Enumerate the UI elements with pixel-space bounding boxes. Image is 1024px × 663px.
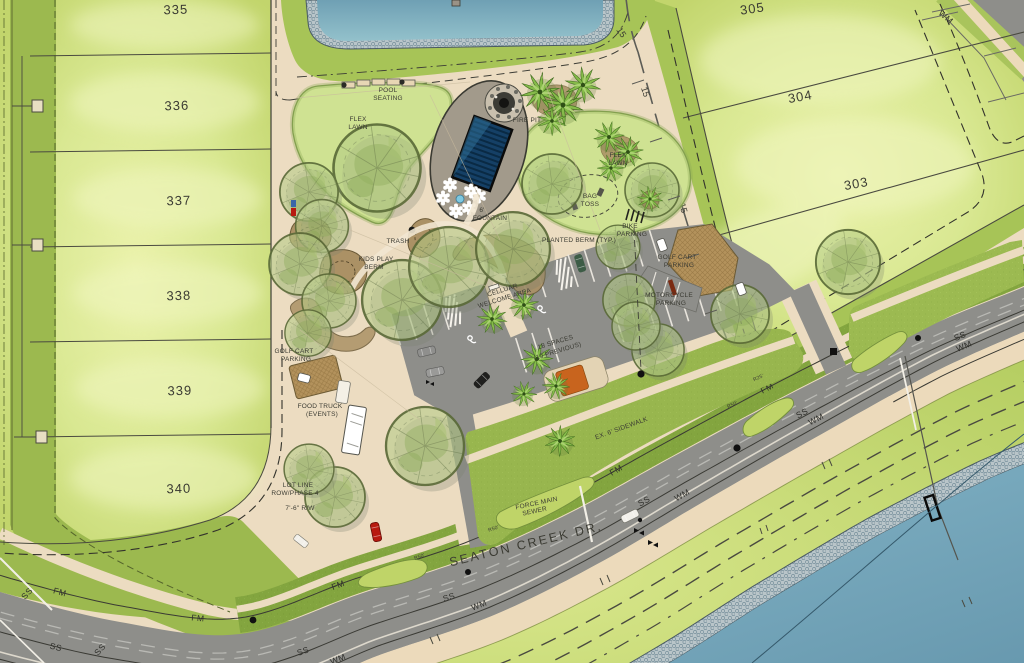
svg-text:7'-6" R/W: 7'-6" R/W — [285, 505, 315, 512]
svg-text:KIDS PLAY: KIDS PLAY — [359, 256, 394, 263]
svg-text:FIRE PIT: FIRE PIT — [513, 117, 541, 124]
svg-text:GOLF CART: GOLF CART — [275, 348, 314, 355]
svg-text:FM: FM — [191, 612, 205, 623]
svg-text:BERM: BERM — [364, 264, 384, 271]
svg-text:6': 6' — [479, 207, 484, 214]
svg-text:336: 336 — [164, 98, 189, 114]
svg-text:PARKING: PARKING — [281, 356, 311, 363]
svg-text:ROW/PHASE 4: ROW/PHASE 4 — [271, 490, 319, 497]
svg-text:LAWN: LAWN — [348, 124, 367, 131]
svg-text:340: 340 — [166, 481, 191, 497]
svg-text:FLEX: FLEX — [349, 116, 367, 123]
svg-text:337: 337 — [166, 193, 191, 209]
svg-text:PARKING: PARKING — [656, 300, 686, 307]
svg-text:PARKING: PARKING — [617, 231, 647, 238]
svg-text:FLEX: FLEX — [609, 152, 627, 159]
svg-text:BAG: BAG — [583, 193, 597, 200]
svg-text:PARKING: PARKING — [664, 262, 694, 269]
svg-text:LAWN: LAWN — [608, 160, 627, 167]
svg-text:PLANTED BERM (TYP.): PLANTED BERM (TYP.) — [542, 237, 616, 244]
svg-text:GOLF CART: GOLF CART — [658, 254, 697, 261]
svg-text:LOT LINE: LOT LINE — [283, 482, 314, 489]
svg-text:POOL: POOL — [379, 87, 398, 94]
svg-text:FOOD TRUCK: FOOD TRUCK — [298, 403, 343, 410]
svg-text:TOSS: TOSS — [581, 201, 600, 208]
svg-text:335: 335 — [163, 2, 188, 18]
svg-text:SEATING: SEATING — [373, 95, 402, 102]
svg-text:TRASH: TRASH — [386, 238, 409, 245]
svg-text:MOTORCYCLE: MOTORCYCLE — [645, 292, 693, 299]
svg-text:FOUNTAIN: FOUNTAIN — [473, 215, 507, 222]
svg-text:339: 339 — [167, 383, 192, 399]
svg-text:338: 338 — [166, 288, 191, 304]
svg-text:BIKE: BIKE — [622, 223, 638, 230]
svg-text:(EVENTS): (EVENTS) — [306, 411, 338, 418]
